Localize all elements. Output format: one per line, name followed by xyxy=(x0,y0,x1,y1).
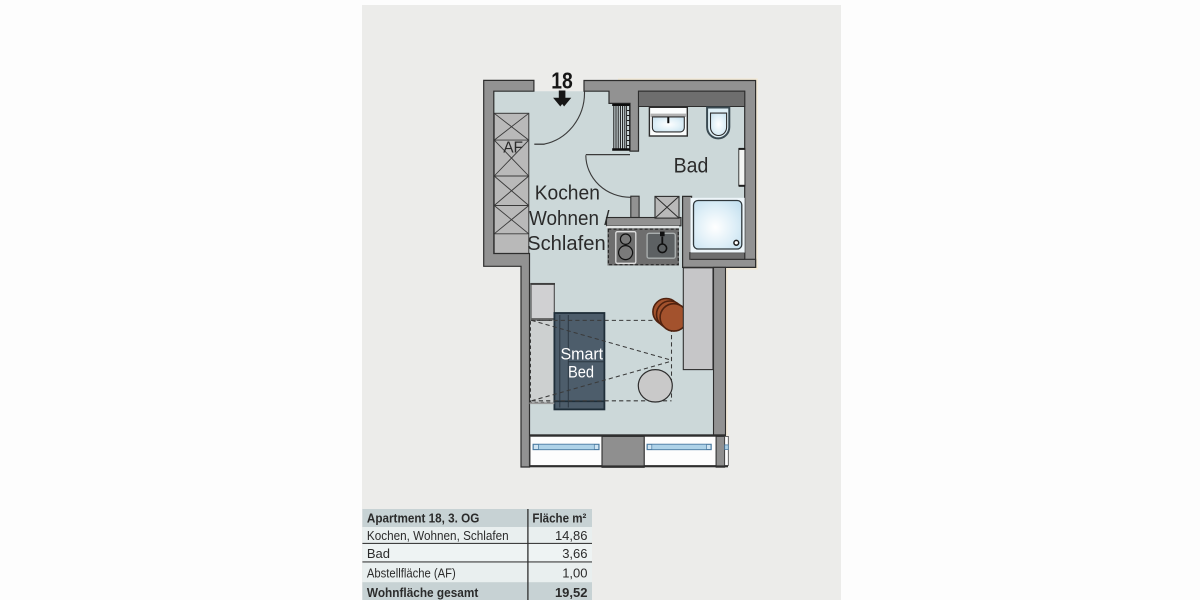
svg-text:AF: AF xyxy=(503,139,523,156)
svg-text:1,00: 1,00 xyxy=(562,566,587,581)
svg-text:Fläche m²: Fläche m² xyxy=(532,510,587,525)
svg-text:Apartment 18, 3. OG: Apartment 18, 3. OG xyxy=(367,510,480,525)
svg-text:Smart: Smart xyxy=(560,345,603,363)
svg-text:Kochen, Wohnen, Schlafen: Kochen, Wohnen, Schlafen xyxy=(367,528,509,543)
svg-text:19,52: 19,52 xyxy=(555,585,588,600)
svg-text:Kochen: Kochen xyxy=(535,182,600,205)
svg-text:Schlafen: Schlafen xyxy=(527,232,606,255)
svg-text:Wohnen /: Wohnen / xyxy=(529,207,610,230)
svg-text:14,86: 14,86 xyxy=(555,528,588,543)
svg-text:Bed: Bed xyxy=(568,363,594,381)
svg-text:Bad: Bad xyxy=(674,154,709,177)
svg-text:Wohnfläche gesamt: Wohnfläche gesamt xyxy=(367,585,479,600)
svg-text:Bad: Bad xyxy=(367,546,390,561)
svg-text:Abstellfläche (AF): Abstellfläche (AF) xyxy=(367,566,456,581)
svg-text:18: 18 xyxy=(551,68,573,94)
svg-text:3,66: 3,66 xyxy=(562,546,587,561)
